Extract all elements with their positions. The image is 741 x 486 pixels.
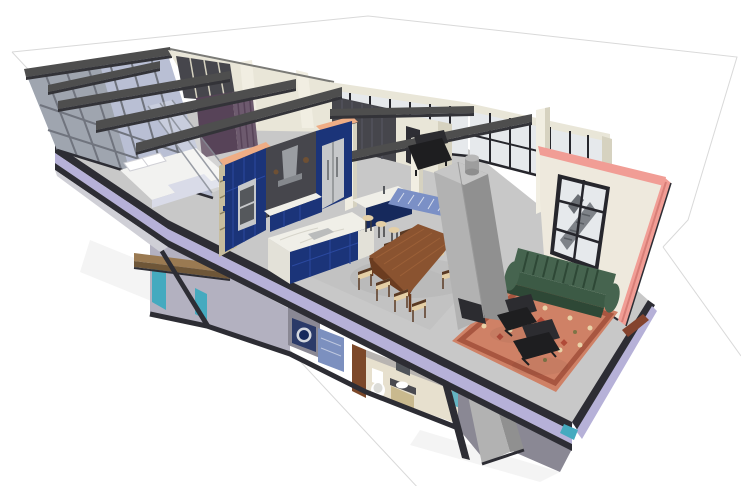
wall-art: [303, 157, 309, 163]
fridge: [322, 138, 344, 209]
wall-ovens: [238, 178, 256, 231]
blue-tile-panel: [318, 328, 344, 372]
model-viewport[interactable]: [0, 0, 741, 486]
cutaway-render: [0, 0, 741, 486]
